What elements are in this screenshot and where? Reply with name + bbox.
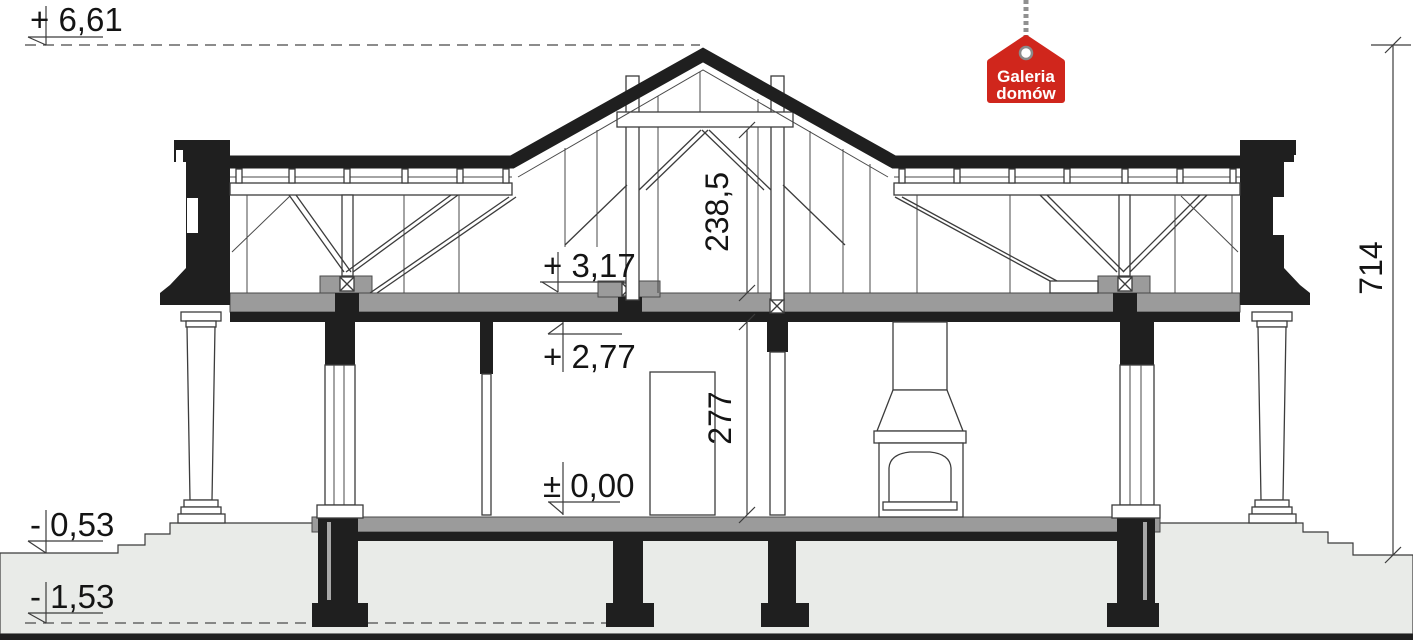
level-marker-terrain: - 0,53 xyxy=(28,506,114,553)
post-anchor-icon xyxy=(1118,277,1132,291)
roof-truss-left-span xyxy=(230,169,516,293)
level-marker-peak: + 6,61 xyxy=(28,1,123,45)
truss-post-left xyxy=(342,195,353,276)
firebox-opening xyxy=(889,452,951,502)
eaves-wall-left xyxy=(160,140,230,305)
window-left xyxy=(325,365,355,505)
king-post-right xyxy=(771,76,784,300)
level-label-foundation: - 1,53 xyxy=(30,578,114,615)
dimension-label-room-height: 277 xyxy=(702,391,738,444)
dimension-label-attic-height: 238,5 xyxy=(699,172,735,252)
fireplace-hearth xyxy=(883,502,957,510)
exterior-wall-left xyxy=(317,322,363,518)
level-label-attic-floor: + 3,17 xyxy=(543,247,636,284)
post-anchor-icon xyxy=(340,277,354,291)
fireplace xyxy=(874,322,966,517)
porch-column-right xyxy=(1249,312,1296,523)
logo-tag: Galeria domów xyxy=(990,0,1062,103)
collar-beam xyxy=(617,112,793,127)
chimney-flue xyxy=(893,322,947,390)
ground-floor-slab xyxy=(312,517,1160,541)
dimension-label-total-height: 714 xyxy=(1353,241,1389,294)
roof-truss-right-span xyxy=(894,169,1240,293)
post-anchor-icon xyxy=(770,299,784,313)
level-label-peak: + 6,61 xyxy=(30,1,123,38)
top-plate-left xyxy=(230,183,512,195)
level-marker-ground-floor: ± 0,00 xyxy=(543,462,635,515)
top-plate-right xyxy=(894,183,1240,195)
attic-curb-right xyxy=(1050,281,1098,293)
level-label-ceiling: + 2,77 xyxy=(543,338,636,375)
dimension-total-height: 714 xyxy=(1353,37,1411,563)
interior-partition-wall xyxy=(480,322,493,515)
logo-eyelet-icon xyxy=(1020,47,1032,59)
house-cross-section-drawing: 238,5 277 714 + 6,61 + 3,17 + 2,77 ± 0 xyxy=(0,0,1413,640)
dimension-attic-height: 238,5 xyxy=(699,122,755,301)
level-label-ground-floor: ± 0,00 xyxy=(543,467,635,504)
level-marker-ceiling: + 2,77 xyxy=(543,322,636,375)
logo-text-line2: domów xyxy=(996,84,1056,103)
truss-post-right xyxy=(1119,195,1130,276)
porch-column-left xyxy=(178,312,225,523)
center-post xyxy=(767,318,788,515)
drawing-bottom-border xyxy=(0,634,1413,640)
fireplace-hood xyxy=(877,390,963,431)
eaves-wall-right xyxy=(1240,140,1310,305)
window-right xyxy=(1120,365,1154,505)
attic-floor-slab xyxy=(230,276,1240,322)
level-label-terrain: - 0,53 xyxy=(30,506,114,543)
fireplace-mantel xyxy=(874,431,966,443)
exterior-wall-right xyxy=(1112,322,1160,518)
